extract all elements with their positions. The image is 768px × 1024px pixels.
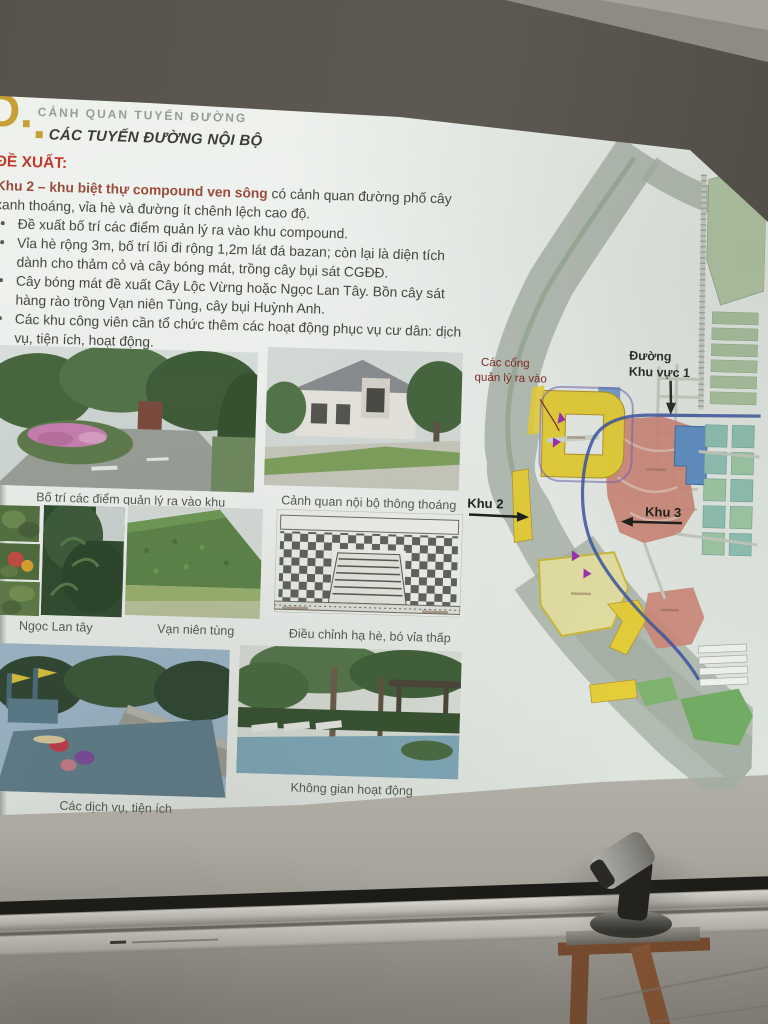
stand-leg-left	[570, 946, 590, 1024]
photo-plant-thumb-3	[0, 581, 40, 616]
photo-lazy-river-pool	[0, 643, 230, 798]
road-vertical	[698, 175, 707, 410]
arrow-left-icon	[631, 522, 682, 523]
diagram-street-section	[274, 509, 463, 617]
map-label-gates-line2: quản lý ra vào	[474, 372, 547, 386]
photo-ngoc-lan-tay-tree	[41, 505, 125, 617]
photo-entrance-street	[0, 345, 258, 493]
map-label-road-line2: Khu vực 1	[629, 365, 691, 381]
photo-plant-thumb-1	[0, 505, 40, 542]
masterplan-map: Các cổng quản lý ra vào Đường Khu vực 1 …	[438, 133, 768, 791]
photo-plant-thumb-2	[0, 543, 40, 580]
proposal-heading: ĐỀ XUẤT:	[0, 153, 67, 173]
photo-villa-street	[264, 347, 463, 491]
photo-resort-pool	[236, 645, 462, 780]
map-label-zone2: Khu 2	[467, 495, 504, 511]
gold-square-bullet-icon	[36, 131, 43, 138]
map-label-gates-line1: Các cổng	[481, 357, 530, 370]
map-label-zone3: Khu 3	[645, 504, 682, 520]
parcel-teal-grid	[702, 425, 754, 556]
building-rows	[698, 644, 748, 686]
map-label-road-line1: Đường	[629, 349, 672, 364]
parcel-yellow-d-loop	[541, 390, 625, 478]
photo-of-projected-slide: D. CẢNH QUAN TUYẾN ĐƯỜNG CÁC TUYẾN ĐƯỜNG…	[0, 0, 768, 1024]
brand-logo-smudge	[110, 941, 126, 945]
proposal-bullet-list: Đề xuất bố trí các điểm quản lý ra vào k…	[0, 214, 468, 361]
brand-text-smudge	[132, 939, 218, 944]
arrow-down-icon	[670, 381, 672, 405]
photo-van-nien-tung-hedge	[125, 505, 263, 619]
parcel-green-rows	[710, 312, 758, 405]
